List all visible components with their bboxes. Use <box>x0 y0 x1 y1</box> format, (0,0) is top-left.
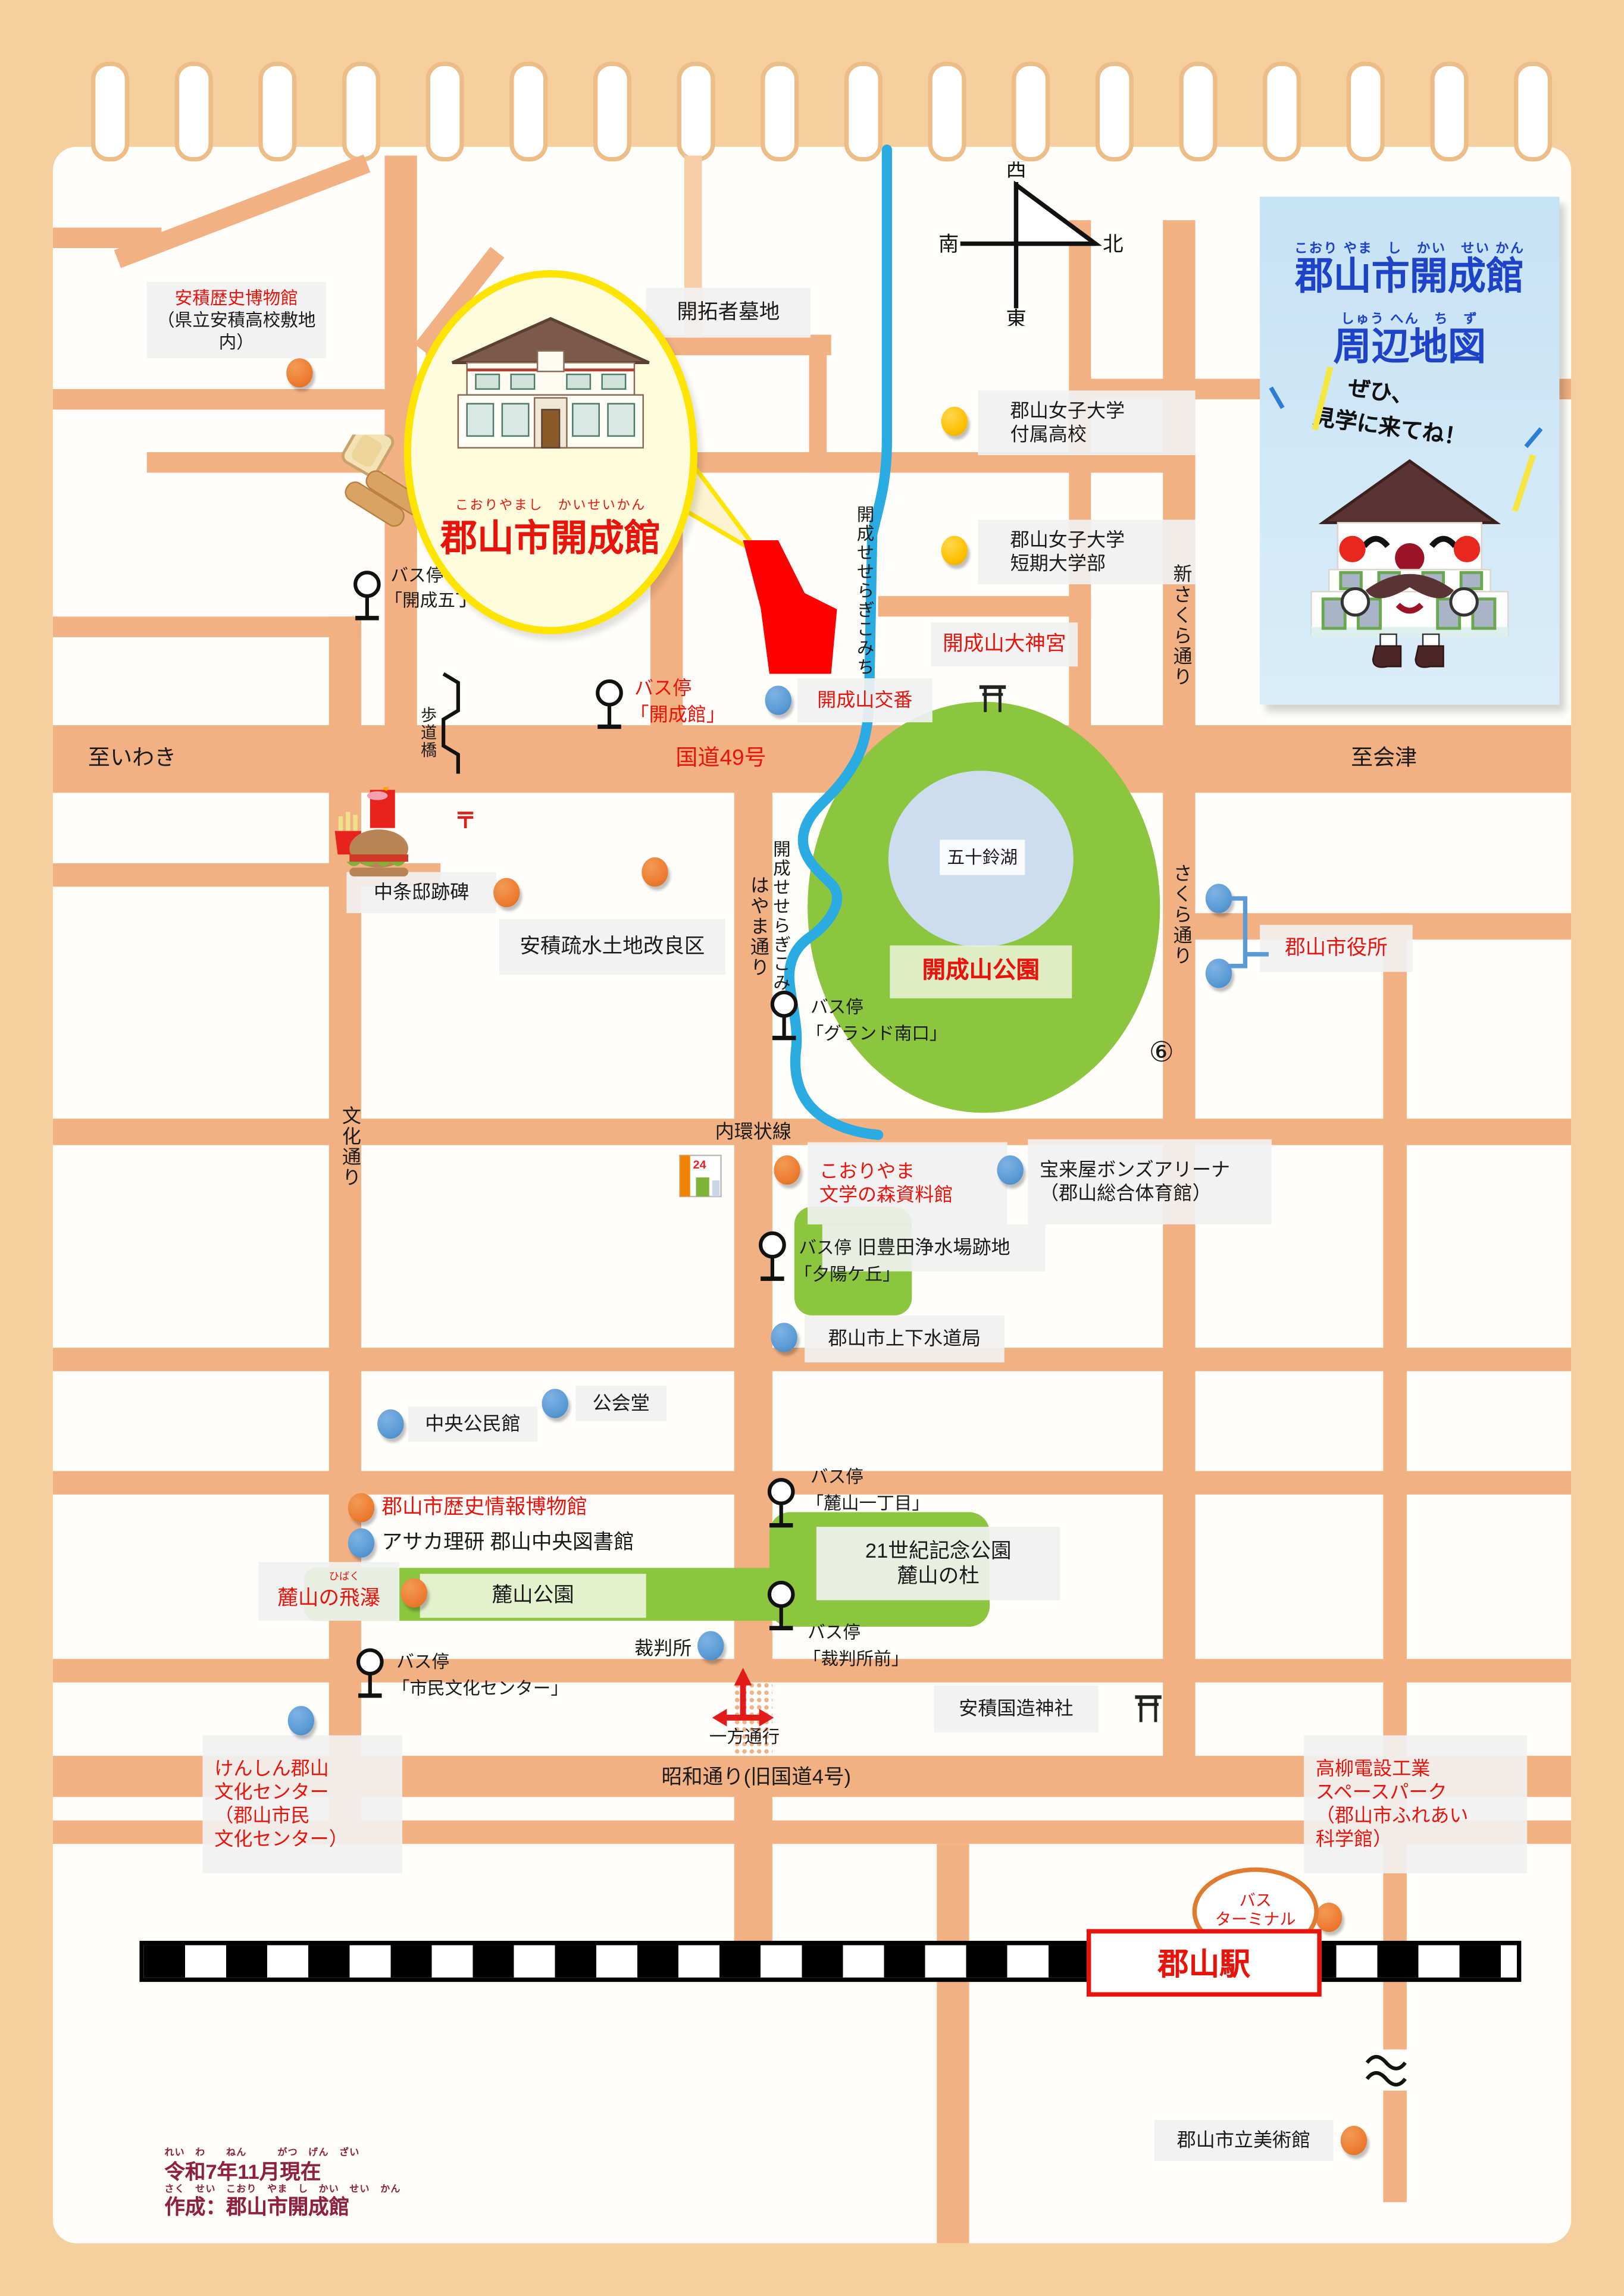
compass-icon: 西南北東 <box>940 161 1131 325</box>
svg-text:24: 24 <box>693 1158 706 1172</box>
bubble-title: 郡山市開成館 <box>411 509 690 562</box>
bus-terminal-line2: ターミナル <box>1215 1912 1296 1931</box>
busstop-icon-kaisei5 <box>352 569 396 625</box>
asaka-history-museum-dot <box>286 358 312 387</box>
hayama-falls: ひばく麓山の飛瀑 <box>258 1562 399 1621</box>
to-iwaki: 至いわき <box>82 743 205 775</box>
nakajo-dot <box>493 878 520 907</box>
busstop-courthouse-l1: バス停 <box>802 1621 896 1644</box>
busstop-icon-civic-center <box>355 1647 399 1703</box>
art-museum-dot <box>1341 2126 1367 2155</box>
asaka-canal-district: 安積疏水土地改良区 <box>499 919 725 975</box>
busstop-icon-hayama1 <box>766 1477 811 1533</box>
pedestrian-bridge: 歩道橋 <box>412 699 436 767</box>
pedestrian-bridge-icon <box>437 672 464 775</box>
kenshin-dot <box>288 1706 314 1735</box>
literature-museum: こおりやま文学の森資料館 <box>808 1142 1007 1224</box>
seseragi-komichi-north: 開成せせらぎこみち <box>850 493 875 687</box>
pioneer-cemetery: 開拓者墓地 <box>646 288 811 338</box>
public-hall: 公会堂 <box>575 1386 667 1421</box>
nakajo-monument: 中条邸跡碑 <box>346 872 496 913</box>
map-canvas: 安積歴史博物館（県立安積高校敷地内）開拓者墓地開成小学校郡山女子大学付属高校郡山… <box>0 0 1624 2296</box>
kenshin-culture-center: けんしん郡山文化センター（郡山市民文化センター） <box>203 1736 403 1874</box>
busstop-yuhigaoka-l2: 「夕陽ケ丘」 <box>788 1263 944 1286</box>
21c-memorial-park: 21世紀記念公園麓山の杜 <box>816 1527 1060 1600</box>
daijingu-torii-icon <box>978 681 1007 713</box>
hayama-falls-dot <box>401 1578 427 1608</box>
space-park: 高柳電設工業スペースパーク（郡山市ふれあい科学館） <box>1304 1736 1527 1874</box>
busstop-icon-ground-south <box>769 989 813 1045</box>
bus-terminal-line1: バス <box>1240 1892 1272 1912</box>
koban-dot <box>765 685 791 715</box>
busstop-icon-kaiseikan <box>594 678 639 734</box>
showa-dori: 昭和通り(旧国道4号) <box>631 1762 881 1794</box>
busstop-hayama1-l1: バス停 <box>805 1465 899 1489</box>
city-art-museum: 郡山市立美術館 <box>1154 2120 1333 2161</box>
svg-text:南: 南 <box>940 233 959 256</box>
hayama-park: 麓山公園 <box>420 1574 646 1618</box>
asaka-canal-dot <box>642 857 668 887</box>
busstop-civic-center-l1: バス停 <box>390 1650 484 1673</box>
busstop-icon-yuhigaoka <box>758 1230 802 1286</box>
busstop-ground-south-l1: バス停 <box>805 995 899 1019</box>
kaiseizan-park: 開成山公園 <box>890 945 1072 998</box>
waterworks-dot <box>771 1323 797 1352</box>
history-museum-dot <box>348 1493 374 1522</box>
asaka-history-museum: 安積歴史博物館（県立安積高校敷地内） <box>147 282 326 358</box>
fast-food-icon <box>332 787 423 878</box>
busstop-hayama1-l2: 「麓山一丁目」 <box>800 1492 971 1515</box>
courthouse-dot <box>697 1631 724 1660</box>
post-office-mark: 〒 <box>449 807 481 837</box>
inner-ring-road: 内環状線 <box>690 1117 816 1147</box>
to-aizu: 至会津 <box>1345 743 1445 775</box>
hayama-dori: はやま通り <box>737 866 769 986</box>
space-park-dot <box>1316 1903 1342 1932</box>
route49: 国道49号 <box>655 743 787 775</box>
busstop-icon-courthouse <box>766 1580 811 1636</box>
kaiseizan-daijingu: 開成山大神宮 <box>931 622 1078 666</box>
womens-univ-highschool: 郡山女子大学付属高校 <box>978 390 1195 455</box>
busstop-courthouse-l2: 「裁判所前」 <box>797 1647 953 1671</box>
city-hall-connector-bracket <box>1222 889 1272 983</box>
kokuso-shrine: 安積国造神社 <box>934 1686 1098 1733</box>
circled-6: ⑥ <box>1143 1036 1181 1072</box>
svg-text:西: 西 <box>1006 161 1027 181</box>
convenience-store-icon: 24 <box>678 1151 722 1198</box>
bonds-arena-dot <box>997 1155 1023 1185</box>
busstop-kaiseikan-l1: バス停 <box>628 677 722 700</box>
library-dot <box>348 1528 374 1558</box>
history-info-museum: 郡山市歴史情報博物館 <box>376 1492 653 1524</box>
womens-univ-college-dot <box>941 536 968 565</box>
one-way: 一方通行 <box>696 1724 793 1750</box>
busstop-civic-center-l2: 「市民文化センター」 <box>386 1677 615 1700</box>
waterworks-bureau: 郡山市上下水道局 <box>805 1315 1005 1362</box>
literature-museum-dot <box>774 1155 800 1185</box>
isuzu-lake: 五十鈴湖 <box>940 840 1025 875</box>
bunka-dori: 文化通り <box>329 1098 361 1195</box>
public-hall-dot <box>542 1389 568 1418</box>
city-hall: 郡山市役所 <box>1260 925 1413 972</box>
svg-text:東: 東 <box>1006 308 1027 326</box>
koriyama-station: 郡山駅 <box>1087 1929 1322 1997</box>
busstop-ground-south-l2: 「グランド南口」 <box>800 1022 988 1045</box>
asaka-riken-central-library: アサカ理研 郡山中央図書館 <box>376 1527 690 1559</box>
busstop-yuhigaoka-l1: バス停 <box>793 1236 887 1260</box>
kaiseikan-building-illustration <box>440 316 661 463</box>
community-center-dot <box>377 1409 403 1439</box>
kokuso-shrine-torii-icon <box>1134 1692 1163 1724</box>
road-break-wavy-icon <box>1363 2050 1410 2091</box>
kaiseikan-callout-bubble: こおりやまし かいせいかん 郡山市開成館 <box>404 270 698 634</box>
central-community-center: 中央公民館 <box>408 1407 537 1442</box>
one-way-arrows-icon <box>711 1665 775 1727</box>
shin-sakura-dori: 新さくら通り <box>1160 555 1192 696</box>
busstop-kaiseikan-l2: 「開成館」 <box>624 703 765 726</box>
bonds-arena: 宝来屋ボンズアリーナ（郡山総合体育館） <box>1028 1139 1272 1224</box>
womens-univ-hs-dot <box>941 406 968 436</box>
sakura-dori: さくら通り <box>1160 854 1192 975</box>
svg-text:北: 北 <box>1103 233 1124 256</box>
